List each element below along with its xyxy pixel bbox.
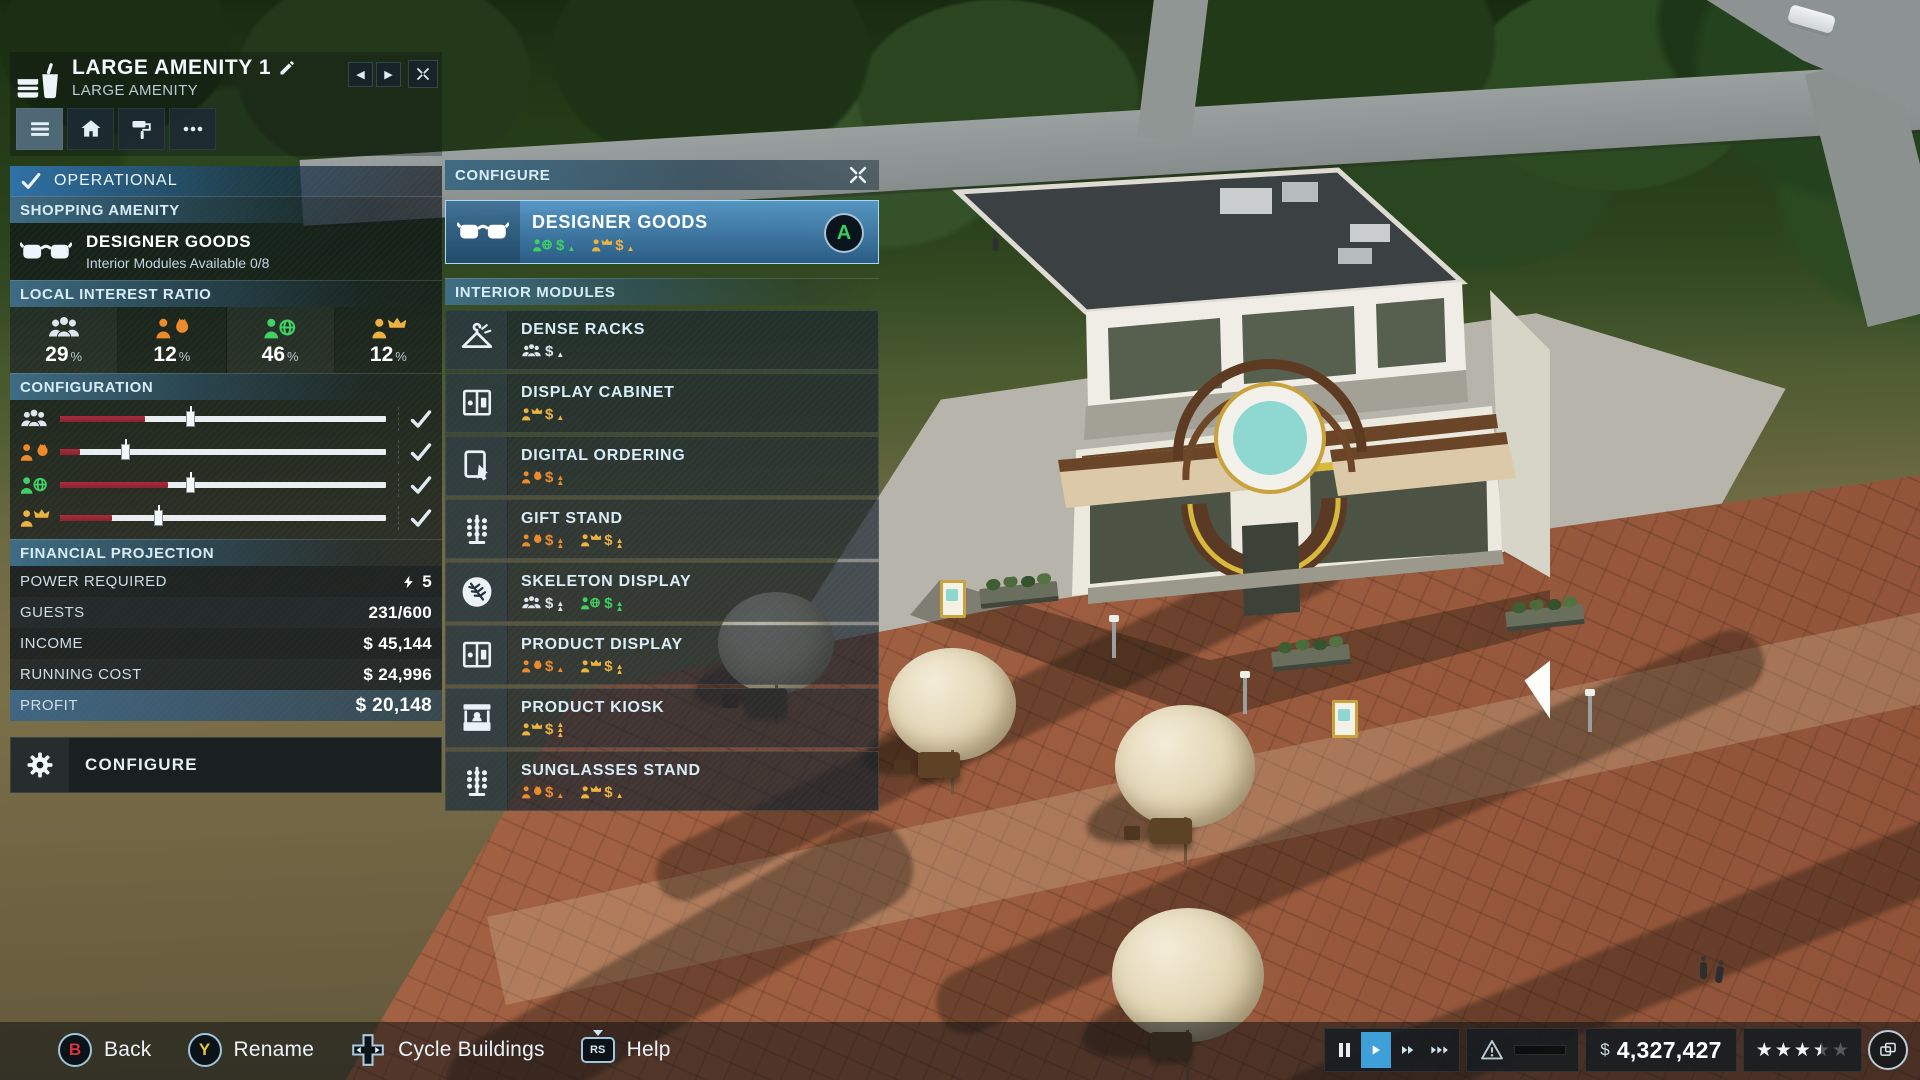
tab-overview[interactable] (16, 108, 63, 150)
lamp-post (1112, 622, 1116, 658)
modules-available: Interior Modules Available 0/8 (86, 255, 269, 271)
slider-track[interactable] (60, 515, 386, 521)
fossil-icon (459, 574, 495, 610)
hint-help[interactable]: RS Help (581, 1037, 671, 1063)
configure-button[interactable]: CONFIGURE (10, 737, 442, 793)
interest-general: 29% (10, 307, 118, 373)
cabinet-icon (459, 385, 495, 421)
luxury-guests-icon (18, 507, 50, 529)
ellipsis-icon (181, 117, 205, 141)
close-icon[interactable] (847, 164, 869, 186)
row-guests: GUESTS 231/600 (10, 597, 442, 628)
gamepad-hints: B Back Y Rename Cycle Buildings RS Help (58, 1032, 671, 1068)
building-info-panel: LARGE AMENITY 1 LARGE AMENITY ◀ ▶ (10, 52, 442, 793)
amenity-icon (16, 60, 62, 100)
panel-body: OPERATIONAL SHOPPING AMENITY DESIGNER GO… (10, 166, 442, 721)
check-icon (398, 506, 434, 530)
cash-amount: 4,327,427 (1617, 1037, 1722, 1064)
tab-paint[interactable] (118, 108, 165, 150)
slider-luxury (18, 505, 434, 531)
game-screen: LARGE AMENITY 1 LARGE AMENITY ◀ ▶ (0, 0, 1920, 1080)
alerts-meter[interactable] (1466, 1028, 1579, 1072)
screens-icon (1878, 1040, 1898, 1060)
configure-panel-title: CONFIGURE (455, 167, 550, 184)
stand-icon (459, 511, 495, 547)
dpad-icon (350, 1032, 386, 1068)
game-speed-controls (1324, 1028, 1460, 1072)
lamp-post (1588, 696, 1592, 732)
slider-track[interactable] (60, 416, 386, 422)
tablet-icon (459, 448, 495, 484)
section-local-interest: LOCAL INTEREST RATIO (10, 280, 442, 307)
selected-shop-tags: $▲$▲ (532, 237, 708, 253)
financial-rows: POWER REQUIRED 5 GUESTS 231/600 INCOME $… (10, 566, 442, 721)
configure-panel-header: CONFIGURE (445, 160, 879, 190)
hint-cycle-buildings[interactable]: Cycle Buildings (350, 1032, 545, 1068)
selected-shop-name: DESIGNER GOODS (532, 212, 708, 233)
patio-table (1150, 818, 1192, 844)
status-bar: OPERATIONAL (10, 166, 442, 196)
building-type: LARGE AMENITY (72, 82, 295, 99)
alert-progress-bar (1514, 1045, 1566, 1055)
module-row-gift-stand[interactable]: GIFT STAND $▲▲$▲▲ (445, 499, 879, 559)
shop-poster (940, 580, 966, 618)
slider-track[interactable] (60, 482, 386, 488)
module-row-digital-ordering[interactable]: DIGITAL ORDERING $▲▲ (445, 436, 879, 496)
interior-modules-list: DENSE RACKS $▲ DISPLAY CABINET $▲ DIGITA… (445, 310, 879, 811)
gamepad-y-icon: Y (188, 1033, 222, 1067)
section-shopping-amenity: SHOPPING AMENITY (10, 196, 442, 223)
guest-on-path (993, 238, 999, 252)
amenity-building (790, 160, 1550, 720)
patio-table (918, 752, 960, 778)
warning-icon (1479, 1038, 1505, 1062)
gear-icon (25, 750, 55, 780)
general-guests-icon (46, 315, 82, 341)
row-running-cost: RUNNING COST $ 24,996 (10, 659, 442, 690)
tab-more[interactable] (169, 108, 216, 150)
module-row-product-kiosk[interactable]: PRODUCT KIOSK $▲▲▲ (445, 688, 879, 748)
slider-handle[interactable] (186, 411, 195, 427)
row-power-required: POWER REQUIRED 5 (10, 566, 442, 597)
section-configuration: CONFIGURATION (10, 373, 442, 400)
check-icon (398, 407, 434, 431)
hanger-icon (459, 322, 495, 358)
tab-move-building[interactable] (67, 108, 114, 150)
park-rating: ★★★★★★★★★★ (1743, 1028, 1862, 1072)
slider-track[interactable] (60, 449, 386, 455)
shop-type-row: DESIGNER GOODS Interior Modules Availabl… (10, 223, 442, 280)
panel-nav: ◀ ▶ (348, 60, 438, 88)
slider-nature (18, 472, 434, 498)
sunglasses-icon (457, 217, 509, 247)
slider-handle[interactable] (186, 477, 195, 493)
status-label: OPERATIONAL (54, 172, 178, 190)
interest-nature: 46% (227, 307, 335, 373)
currency-symbol: $ (1600, 1040, 1609, 1060)
shop-type-name: DESIGNER GOODS (86, 232, 269, 252)
slider-adventure (18, 439, 434, 465)
interest-ratio-grid: 29% 12% 46% 12% (10, 307, 442, 373)
panel-toolbar (16, 108, 436, 150)
row-profit: PROFIT $ 20,148 (10, 690, 442, 721)
shop-poster (1332, 700, 1358, 738)
adventure-guests-icon (154, 315, 190, 341)
cash-display: $ 4,327,427 (1585, 1028, 1737, 1072)
section-financial: FINANCIAL PROJECTION (10, 539, 442, 566)
nature-guests-icon (18, 474, 50, 496)
hint-back[interactable]: B Back (58, 1033, 152, 1067)
row-income: INCOME $ 45,144 (10, 628, 442, 659)
module-row-product-display[interactable]: PRODUCT DISPLAY $▲$▲▲ (445, 625, 879, 685)
sunglasses-icon (20, 236, 72, 268)
module-row-sunglasses-stand[interactable]: SUNGLASSES STAND $▲$▲ (445, 751, 879, 811)
stand-icon (459, 763, 495, 799)
slider-handle[interactable] (154, 510, 163, 526)
module-row-skeleton-display[interactable]: SKELETON DISPLAY $▲▲$▲▲ (445, 562, 879, 622)
hint-rename[interactable]: Y Rename (188, 1033, 315, 1067)
prev-building-button[interactable]: ◀ (348, 62, 373, 87)
play-button[interactable] (1361, 1032, 1391, 1068)
next-building-button[interactable]: ▶ (376, 62, 401, 87)
fast-forward-button[interactable] (1393, 1032, 1423, 1068)
selected-shop-type-card[interactable]: DESIGNER GOODS $▲$▲ A (445, 200, 879, 264)
check-icon (20, 170, 42, 192)
rename-icon[interactable] (278, 60, 295, 77)
gamepad-b-icon: B (58, 1033, 92, 1067)
kiosk-icon (459, 700, 495, 736)
cabinet-icon (459, 637, 495, 673)
guest (1700, 962, 1707, 979)
general-guests-icon (18, 408, 50, 430)
adventure-guests-icon (18, 441, 50, 463)
interest-luxury: 12% (335, 307, 442, 373)
patio-chair (1124, 826, 1140, 840)
collapse-icon (415, 66, 431, 82)
fastest-forward-button[interactable] (1425, 1032, 1455, 1068)
paint-roller-icon (130, 117, 154, 141)
pause-button[interactable] (1329, 1032, 1359, 1068)
collapse-panel-button[interactable] (408, 60, 438, 88)
slider-handle[interactable] (121, 444, 130, 460)
power-icon (401, 572, 416, 592)
section-interior-modules: INTERIOR MODULES (445, 278, 879, 305)
interest-adventure: 12% (118, 307, 226, 373)
building-name: LARGE AMENITY 1 (72, 56, 271, 80)
module-row-dense-racks[interactable]: DENSE RACKS $▲ (445, 310, 879, 370)
home-icon (79, 117, 103, 141)
module-row-display-cabinet[interactable]: DISPLAY CABINET $▲ (445, 373, 879, 433)
check-icon (398, 473, 434, 497)
configure-panel: CONFIGURE DESIGNER GOODS $▲$▲ A INTERIOR… (445, 160, 879, 811)
check-icon (398, 440, 434, 464)
building-title-row: LARGE AMENITY 1 (72, 56, 295, 80)
nature-guests-icon (262, 315, 298, 341)
hud-bottom-right: $ 4,327,427 ★★★★★★★★★★ (1324, 1028, 1908, 1072)
patio-chair (894, 760, 910, 774)
configuration-sliders (10, 400, 442, 539)
menu-icon (28, 117, 52, 141)
right-stick-icon: RS (581, 1037, 615, 1063)
cycle-view-button[interactable] (1868, 1030, 1908, 1070)
luxury-guests-icon (370, 315, 406, 341)
panel-header: LARGE AMENITY 1 LARGE AMENITY ◀ ▶ (10, 52, 442, 156)
slider-general (18, 406, 434, 432)
gamepad-a-button[interactable]: A (824, 213, 864, 253)
